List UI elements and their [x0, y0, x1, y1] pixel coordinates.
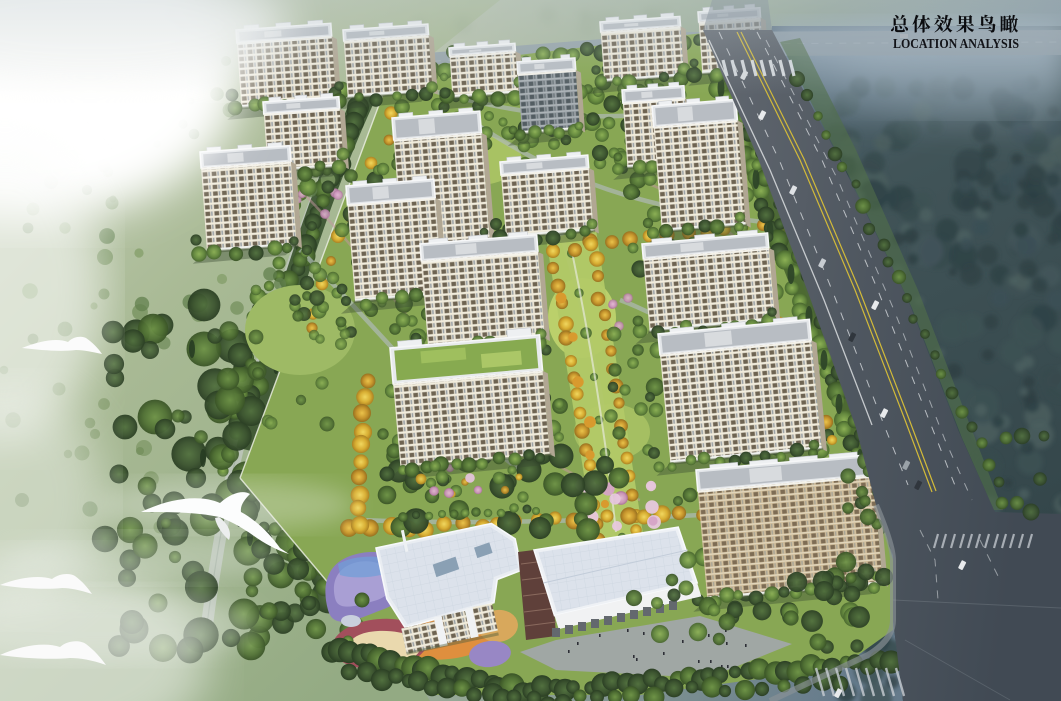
svg-text:LOCATION ANALYSIS: LOCATION ANALYSIS — [893, 36, 1019, 51]
